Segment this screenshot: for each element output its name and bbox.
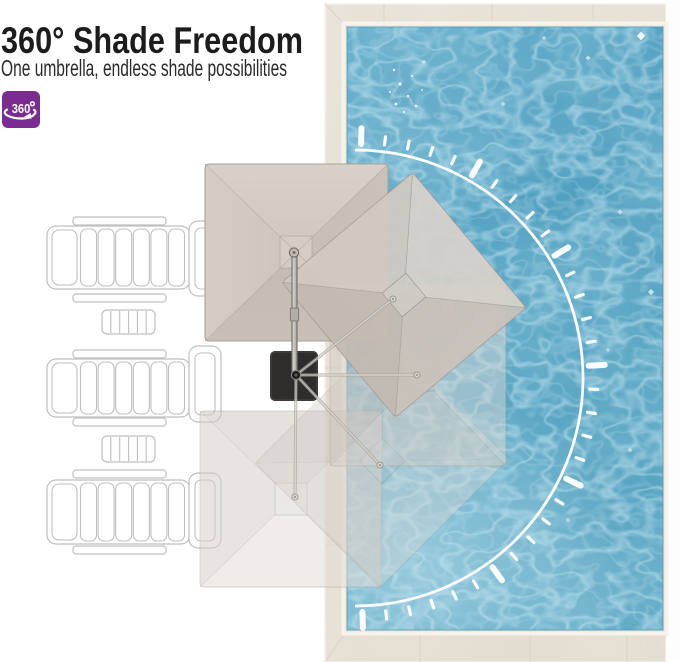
svg-text:One umbrella, endless shade po: One umbrella, endless shade possibilitie… (1, 55, 287, 81)
svg-text:360: 360 (12, 101, 31, 116)
